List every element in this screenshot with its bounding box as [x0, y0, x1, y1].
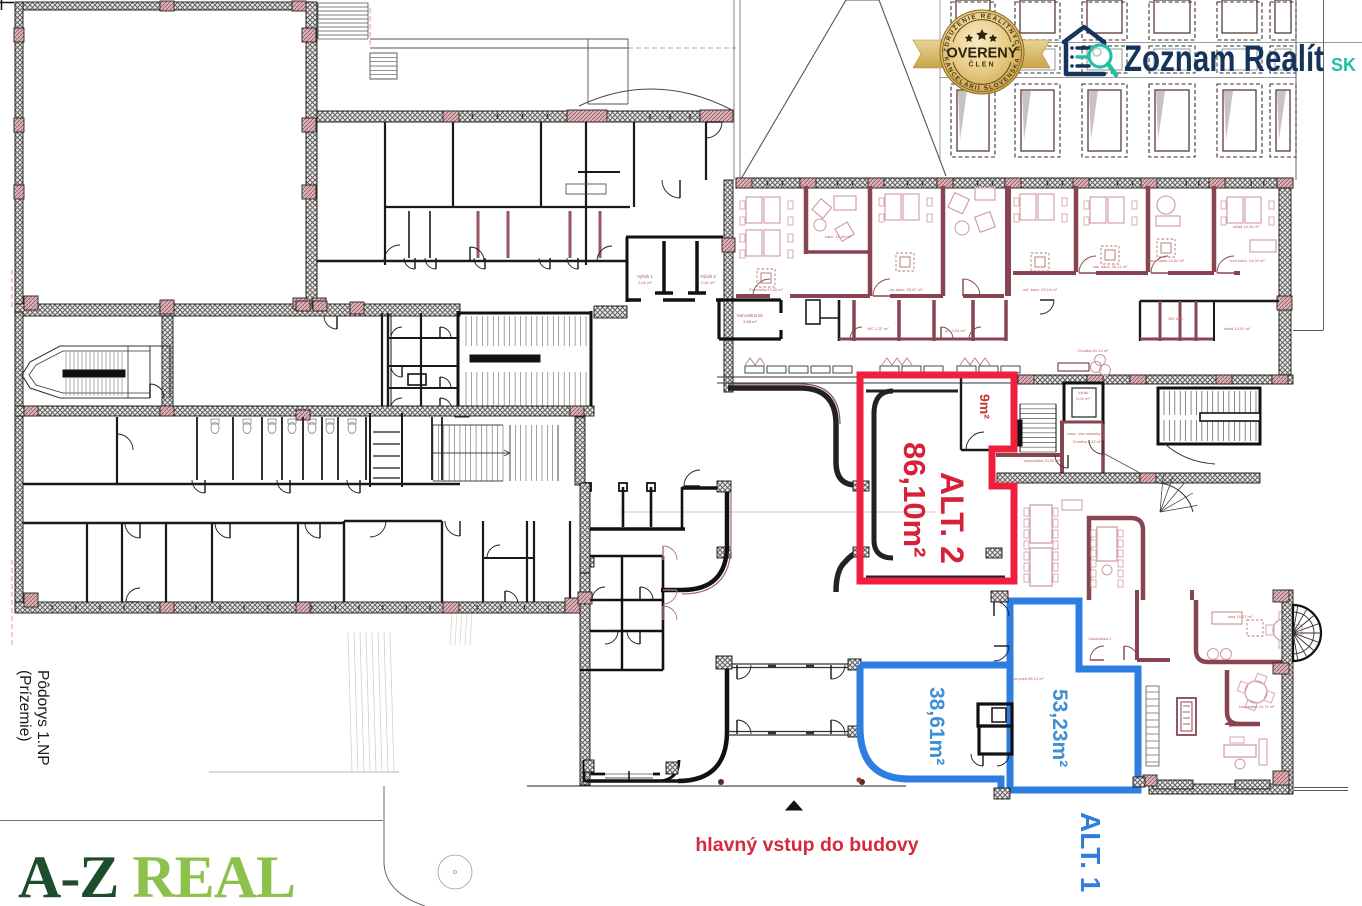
svg-text:OVERENÝ: OVERENÝ [947, 44, 1018, 62]
svg-text:kanc. dve sedačky: kanc. dve sedačky [1068, 431, 1101, 436]
svg-text:(Prízemie): (Prízemie) [16, 670, 33, 741]
svg-text:pre 2,04 m²: pre 2,04 m² [945, 328, 966, 333]
svg-text:9m²: 9m² [977, 394, 993, 419]
svg-text:sklad 13,16 m²: sklad 13,16 m² [1233, 224, 1260, 229]
svg-text:hlavný vstup do budovy: hlavný vstup do budovy [695, 834, 918, 856]
svg-text:WC 1,37 m²: WC 1,37 m² [867, 326, 889, 331]
svg-text:Výťah: Výťah [1078, 390, 1089, 395]
svg-text:vrch kanc. 14,02 m²: vrch kanc. 14,02 m² [1229, 258, 1265, 263]
svg-text:ALT. 2: ALT. 2 [934, 472, 970, 564]
svg-text:Pracovňa 20,55 m²: Pracovňa 20,55 m² [749, 287, 783, 292]
svg-text:Zoznam Realít: Zoznam Realít [1124, 38, 1324, 79]
svg-text:2,01 m²: 2,01 m² [638, 280, 652, 285]
svg-text:Chodba 3,32 m²: Chodba 3,32 m² [1073, 439, 1102, 444]
svg-text:Výťah 2: Výťah 2 [700, 274, 716, 279]
svg-text:2,01 m²: 2,01 m² [701, 280, 715, 285]
svg-text:Kancelária bb: Kancelária bb [737, 313, 763, 318]
svg-text:5,58 m²: 5,58 m² [743, 319, 757, 324]
svg-text:2,01 m²: 2,01 m² [1076, 396, 1090, 401]
svg-text:kanc. baba 14,02 m²: kanc. baba 14,02 m² [1148, 258, 1185, 263]
svg-text:ČLEN: ČLEN [968, 60, 995, 69]
svg-text:Zasadačka 2: Zasadačka 2 [1089, 636, 1113, 641]
svg-text:kanc. 11,06 m²: kanc. 11,06 m² [825, 234, 852, 239]
svg-text:Chodba 61,12 m²: Chodba 61,12 m² [1078, 348, 1110, 353]
svg-text:38,61m²: 38,61m² [925, 687, 948, 765]
svg-text:53,23m²: 53,23m² [1048, 689, 1071, 767]
svg-text:Izba 16,07 m²: Izba 16,07 m² [1228, 614, 1253, 619]
svg-text:vip kanc. 23,07 m²: vip kanc. 23,07 m² [890, 287, 923, 292]
svg-text:Výťah 1: Výťah 1 [637, 274, 653, 279]
svg-text:Pôdorys 1.NP: Pôdorys 1.NP [34, 670, 51, 766]
svg-text:Biela pozd 55,10 m²: Biela pozd 55,10 m² [1008, 676, 1044, 681]
svg-text:86,10m²: 86,10m² [897, 442, 932, 557]
svg-text:kancelária 10,71 m²: kancelária 10,71 m² [1239, 704, 1275, 709]
svg-text:A-Z REAL: A-Z REAL [18, 844, 295, 906]
svg-text:WC kab.: WC kab. [1168, 316, 1183, 321]
svg-text:zas. kanc. 26,11 m²: zas. kanc. 26,11 m² [1093, 264, 1128, 269]
svg-text:SK: SK [1331, 55, 1356, 75]
svg-text:ALT. 1: ALT. 1 [1075, 812, 1106, 892]
svg-text:veľ. kanc. 29,14 m²: veľ. kanc. 29,14 m² [1023, 287, 1058, 292]
svg-text:sklad 13,02 m²: sklad 13,02 m² [1224, 326, 1251, 331]
